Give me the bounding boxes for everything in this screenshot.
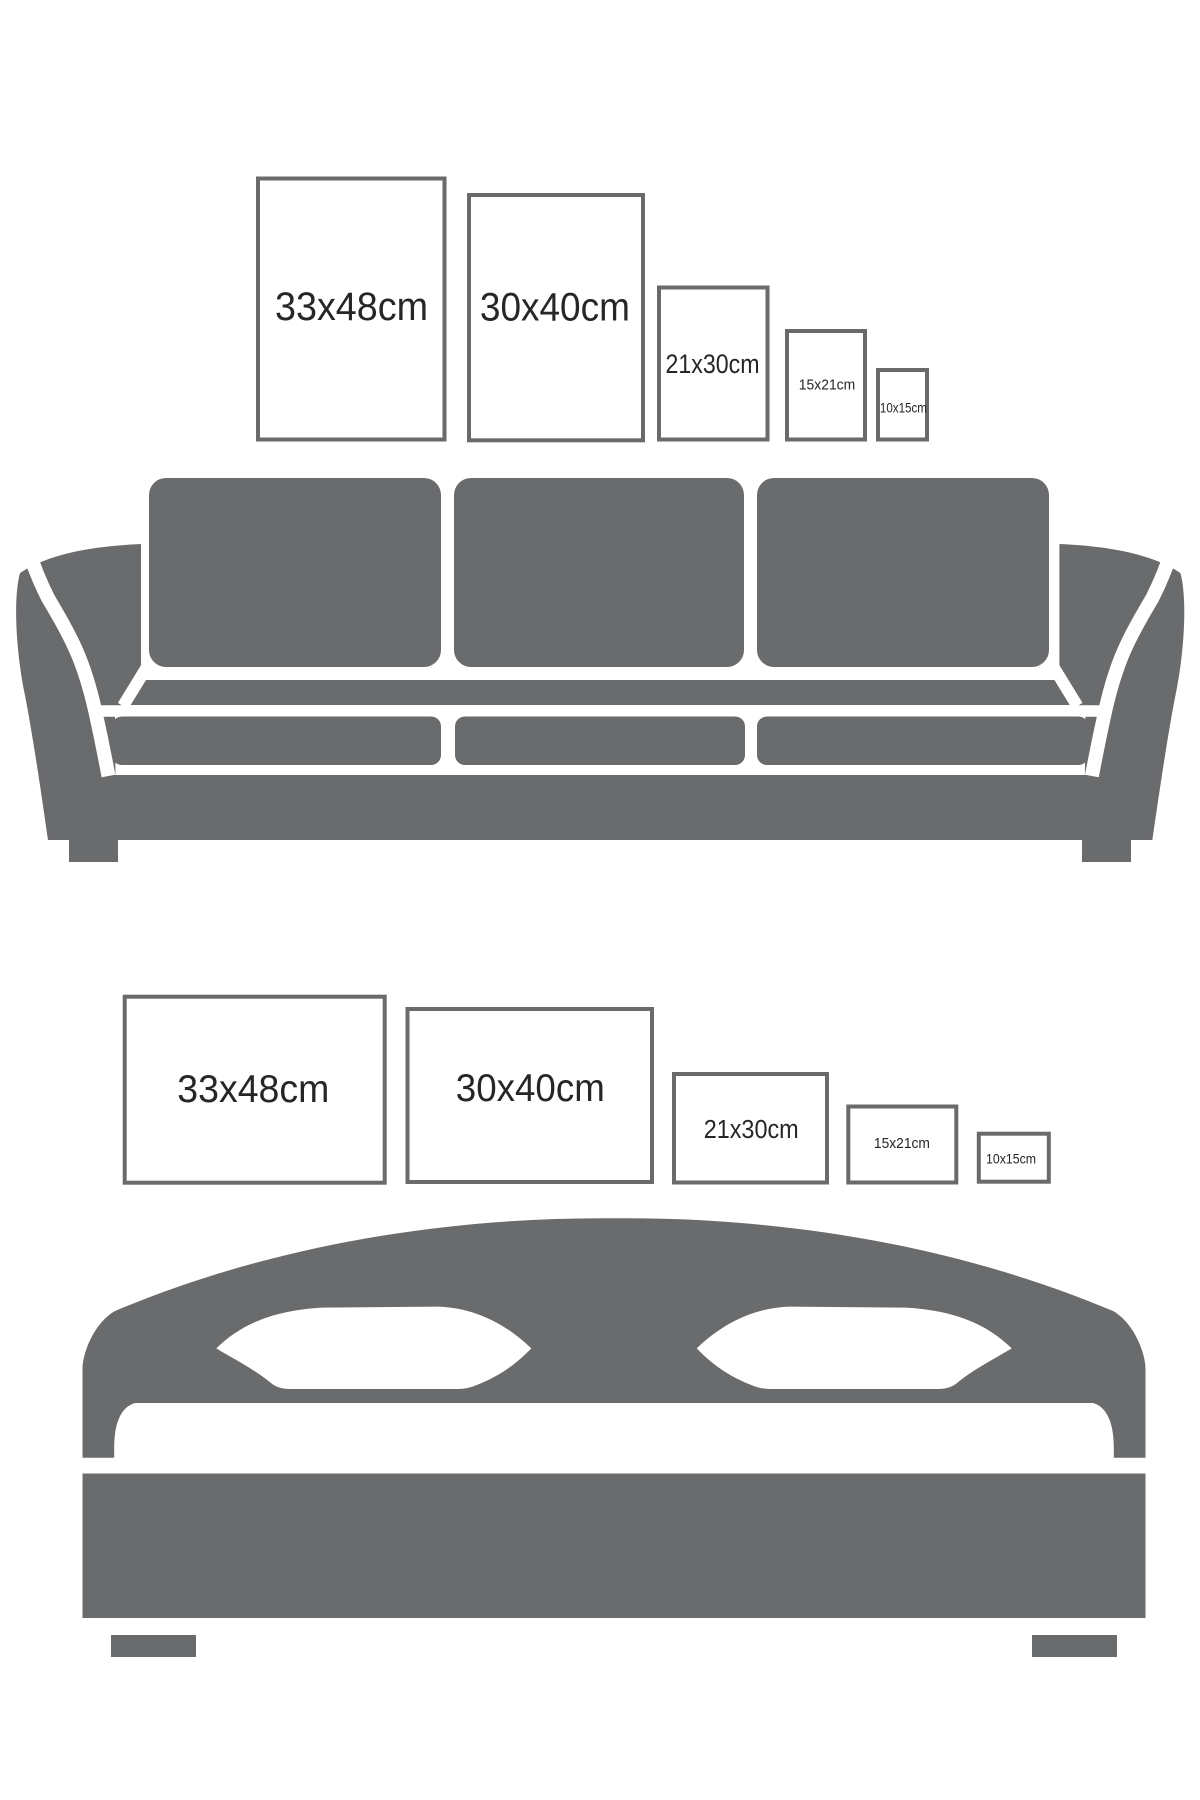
svg-text:30x40cm: 30x40cm	[480, 286, 630, 330]
svg-text:10x15cm: 10x15cm	[880, 400, 927, 415]
svg-text:15x21cm: 15x21cm	[799, 378, 856, 394]
svg-text:33x48cm: 33x48cm	[275, 285, 428, 329]
svg-text:33x48cm: 33x48cm	[177, 1068, 329, 1111]
svg-text:30x40cm: 30x40cm	[456, 1067, 605, 1110]
svg-text:10x15cm: 10x15cm	[986, 1152, 1036, 1167]
svg-text:15x21cm: 15x21cm	[874, 1136, 930, 1152]
svg-text:21x30cm: 21x30cm	[704, 1116, 799, 1144]
svg-text:21x30cm: 21x30cm	[666, 349, 760, 379]
